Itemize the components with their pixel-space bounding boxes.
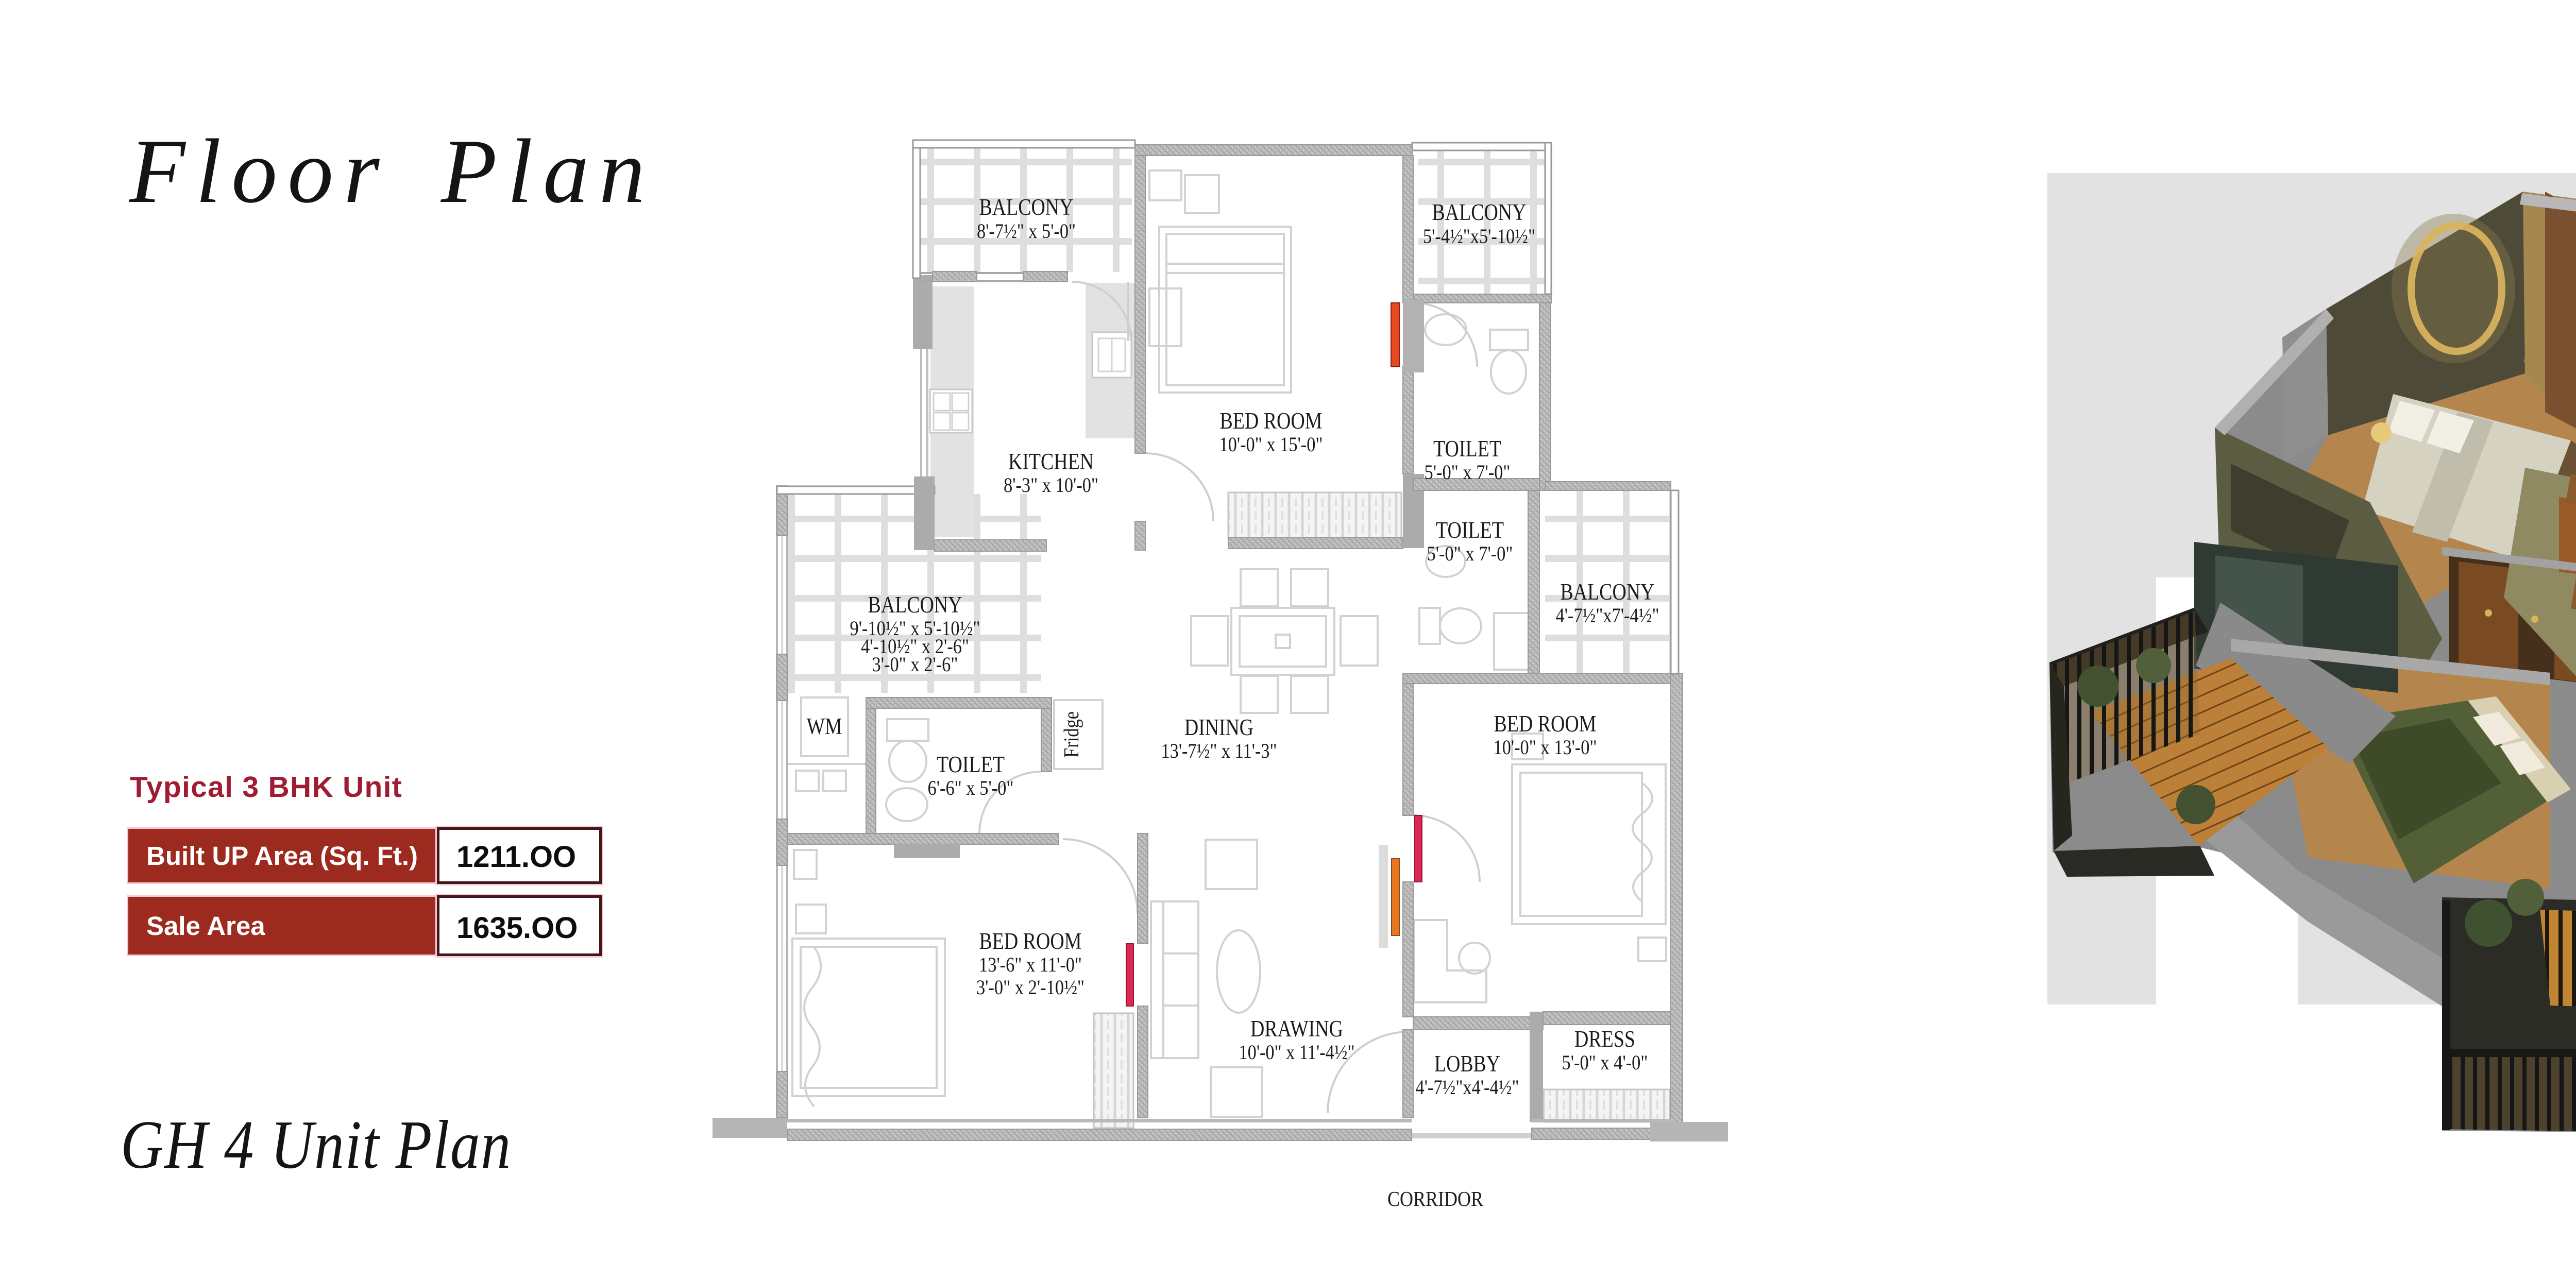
svg-text:DRESS: DRESS	[1574, 1026, 1635, 1052]
svg-text:KITCHEN: KITCHEN	[1008, 449, 1094, 474]
svg-text:3'-0" x 2'-10½": 3'-0" x 2'-10½"	[976, 976, 1084, 999]
svg-text:TOILET: TOILET	[1436, 517, 1504, 543]
svg-text:BED ROOM: BED ROOM	[1494, 711, 1597, 737]
svg-text:LOBBY: LOBBY	[1434, 1051, 1500, 1077]
svg-text:BALCONY: BALCONY	[868, 592, 962, 618]
svg-text:10'-0" x 13'-0": 10'-0" x 13'-0"	[1494, 736, 1597, 759]
svg-text:TOILET: TOILET	[937, 752, 1005, 777]
svg-text:BALCONY: BALCONY	[979, 194, 1074, 220]
svg-text:3'-0" x 2'-6": 3'-0" x 2'-6"	[872, 653, 958, 676]
svg-text:BED ROOM: BED ROOM	[979, 928, 1082, 954]
svg-text:10'-0" x 11'-4½": 10'-0" x 11'-4½"	[1239, 1041, 1355, 1064]
svg-text:13'-7½" x 11'-3": 13'-7½" x 11'-3"	[1161, 739, 1277, 762]
svg-text:10'-0" x 15'-0": 10'-0" x 15'-0"	[1219, 433, 1323, 456]
svg-text:4'-7½"x7'-4½": 4'-7½"x7'-4½"	[1556, 604, 1659, 627]
svg-text:DRAWING: DRAWING	[1250, 1016, 1343, 1042]
svg-text:13'-6" x 11'-0": 13'-6" x 11'-0"	[979, 953, 1082, 976]
svg-text:BALCONY: BALCONY	[1432, 199, 1527, 225]
svg-text:TOILET: TOILET	[1433, 436, 1501, 462]
svg-text:6'-6" x 5'-0": 6'-6" x 5'-0"	[928, 776, 1014, 799]
svg-text:5'-0" x 4'-0": 5'-0" x 4'-0"	[1562, 1051, 1648, 1074]
svg-text:BED ROOM: BED ROOM	[1220, 408, 1323, 434]
svg-text:8'-3" x 10'-0": 8'-3" x 10'-0"	[1004, 473, 1098, 497]
svg-text:8'-7½" x 5'-0": 8'-7½" x 5'-0"	[977, 219, 1076, 243]
svg-text:5'-0" x 7'-0": 5'-0" x 7'-0"	[1425, 461, 1511, 484]
svg-text:Fridge: Fridge	[1059, 711, 1083, 758]
svg-text:WM: WM	[807, 713, 842, 739]
svg-text:CORRIDOR: CORRIDOR	[1387, 1187, 1484, 1211]
svg-text:5'-4½"x5'-10½": 5'-4½"x5'-10½"	[1423, 225, 1535, 248]
svg-text:BALCONY: BALCONY	[1561, 579, 1655, 605]
svg-text:4'-7½"x4'-4½": 4'-7½"x4'-4½"	[1416, 1076, 1519, 1099]
svg-text:5'-0" x 7'-0": 5'-0" x 7'-0"	[1427, 542, 1513, 565]
svg-text:DINING: DINING	[1184, 714, 1253, 740]
